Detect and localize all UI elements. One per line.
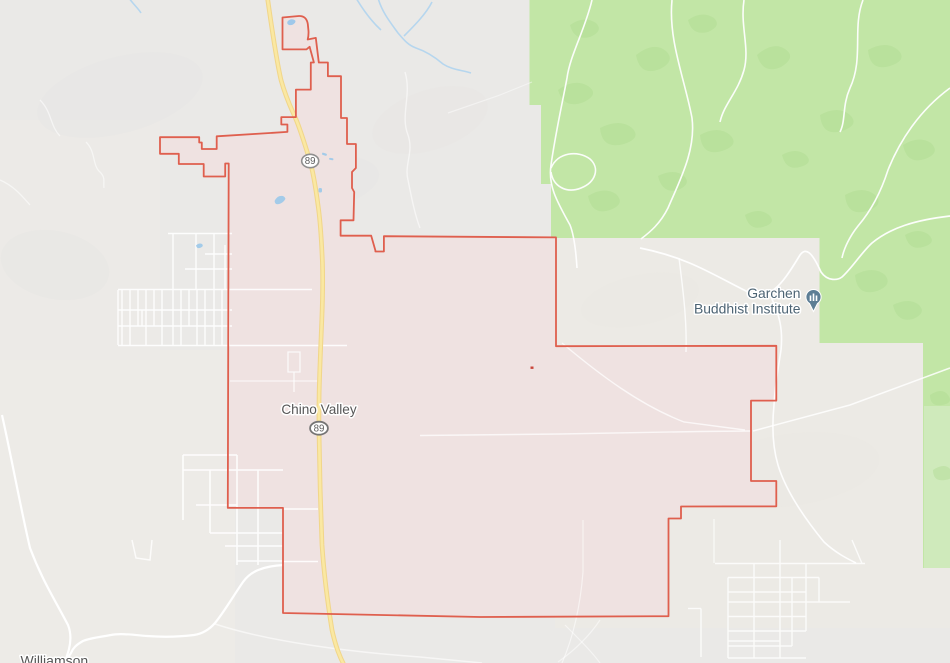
svg-text:Williamson: Williamson [21, 653, 89, 663]
svg-text:89: 89 [314, 423, 325, 434]
svg-text:Chino Valley: Chino Valley [281, 402, 357, 417]
svg-text:Garchen: Garchen [747, 285, 800, 301]
svg-text:89: 89 [305, 156, 316, 167]
svg-text:Buddhist Institute: Buddhist Institute [694, 301, 801, 317]
